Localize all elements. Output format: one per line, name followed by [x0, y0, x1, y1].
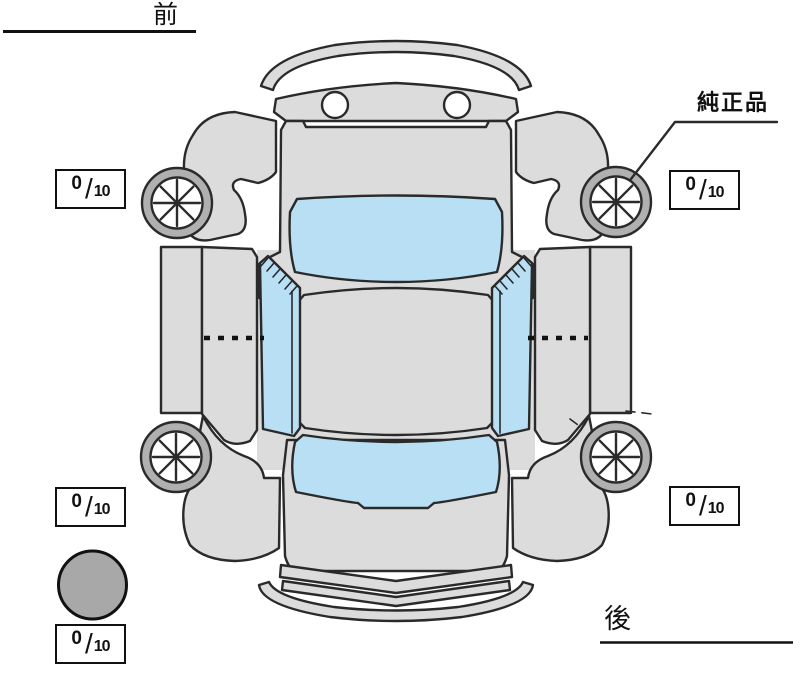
windshield	[290, 196, 503, 283]
tread-score-rear-left: 0 / 10	[55, 487, 126, 527]
right-door-outer-panel	[590, 247, 631, 413]
car-top-view-svg	[0, 0, 800, 675]
spare-tire-icon	[59, 551, 127, 619]
rear-left-wheel-icon	[141, 422, 211, 492]
front-right-wheel-icon	[581, 167, 651, 237]
front-label: 前	[153, 3, 179, 28]
rear-window	[292, 435, 500, 508]
tread-slash: /	[699, 490, 707, 522]
tread-score-front-left: 0 / 10	[55, 169, 126, 209]
rear-right-wheel-icon	[581, 422, 651, 492]
right-door-inner-panel	[535, 247, 590, 444]
genuine-part-label: 純正品	[697, 92, 769, 114]
tread-score-front-right: 0 / 10	[669, 170, 740, 210]
tread-value: 0	[71, 491, 82, 513]
front-left-wheel-icon	[142, 168, 212, 238]
tread-value: 0	[71, 173, 82, 195]
tread-value: 0	[685, 174, 696, 196]
tread-slash: /	[85, 173, 93, 205]
right-headlight-icon	[444, 92, 470, 118]
tread-slash: /	[85, 628, 93, 660]
tread-slash: /	[699, 174, 707, 206]
tread-max: 10	[708, 500, 724, 518]
left-headlight-icon	[322, 92, 348, 118]
tread-max: 10	[94, 183, 110, 201]
tread-max: 10	[94, 638, 110, 656]
rear-label: 後	[604, 606, 631, 633]
tread-value: 0	[685, 490, 696, 512]
tread-max: 10	[708, 184, 724, 202]
tread-value: 0	[71, 628, 82, 650]
left-door-inner-panel	[202, 247, 257, 444]
roof	[295, 288, 497, 435]
tread-slash: /	[85, 491, 93, 523]
tread-score-spare: 0 / 10	[55, 624, 126, 664]
tread-score-rear-right: 0 / 10	[669, 486, 740, 526]
car-inspection-diagram: 前 純正品 後 0 / 10 0 / 10 0 / 10 0 / 10 0 / …	[0, 0, 800, 675]
front-cowl-panel	[274, 83, 518, 121]
left-door-outer-panel	[161, 247, 202, 413]
tread-max: 10	[94, 501, 110, 519]
